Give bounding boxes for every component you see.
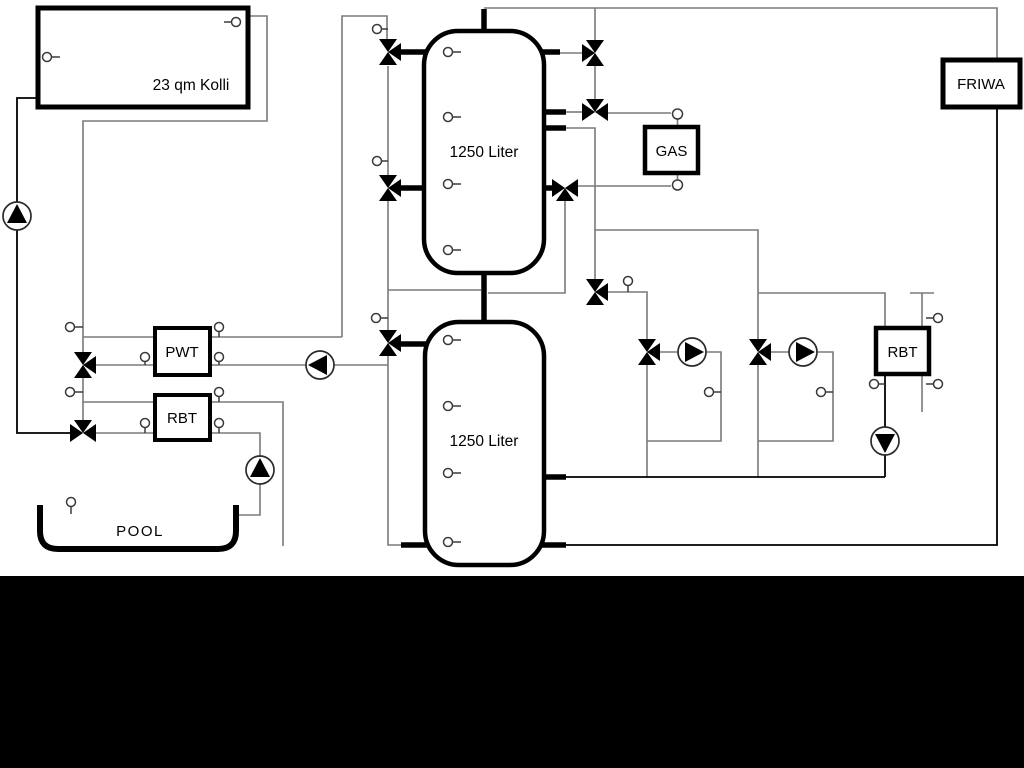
rbt-right-heat-exchanger: RBT [876,328,929,374]
valve-tank-bottom-left [379,330,401,356]
valve-heating-circuit-2 [749,339,771,365]
sensor [926,380,943,389]
solar-collector: 23 qm Kolli [38,8,248,107]
valve-collector-tank-top-left [379,39,401,65]
sensor [141,419,150,434]
sensor [215,323,224,338]
buffer-tank-top-label: 1250 Liter [450,144,519,161]
buffer-tank-top: 1250 Liter [424,31,544,273]
valve-solar-pwt [74,352,96,378]
valve-heating-circuit-1 [638,339,660,365]
sensor [67,498,76,515]
rbt-left-label: RBT [167,410,197,427]
pool: POOL [40,505,236,549]
pwt-heat-exchanger: PWT [155,328,210,375]
sensor [817,388,834,397]
sensor [624,277,633,293]
schematic-canvas: 23 qm Kolli 1250 Liter 1250 Liter PWT RB… [0,0,1024,768]
valve-heating-header [586,279,608,305]
sensor [215,353,224,366]
pump-pool [246,456,274,484]
pump-heating-1 [678,338,706,366]
friwa-station: FRIWA [943,60,1020,107]
sensor [66,388,84,397]
sensor [705,388,722,397]
sensor [215,388,224,403]
sensor [66,323,84,332]
sensor [373,157,389,166]
pump-solar [3,202,31,230]
pool-label: POOL [116,523,164,540]
hydraulic-schematic: 23 qm Kolli 1250 Liter 1250 Liter PWT RB… [0,0,1024,768]
valve-dhw-top [582,40,604,66]
bottom-black-band [0,576,1024,768]
sensor [926,314,943,323]
sensor [215,419,224,434]
rbt-right-label: RBT [888,344,918,361]
buffer-tank-bottom-label: 1250 Liter [450,433,519,450]
collector-label: 23 qm Kolli [153,77,230,94]
pump-heating-2 [789,338,817,366]
sensor [372,314,389,323]
gas-boiler: GAS [645,127,698,173]
pump-rbt [871,427,899,455]
sensor [141,353,150,366]
sensor [870,380,886,389]
pump-pwt [306,351,334,379]
rbt-left-heat-exchanger: RBT [155,395,210,440]
buffer-tank-bottom: 1250 Liter [425,322,544,565]
pwt-label: PWT [165,344,198,361]
gas-port-top [673,109,683,119]
friwa-label: FRIWA [957,76,1005,93]
sensor [373,25,389,34]
valve-collector-tank-mid-left [379,175,401,201]
gas-label: GAS [656,143,688,160]
valve-gas-return [552,179,578,201]
gas-port-bottom [673,180,683,190]
valve-gas-supply [582,99,608,121]
valve-solar-rbt [70,420,96,442]
